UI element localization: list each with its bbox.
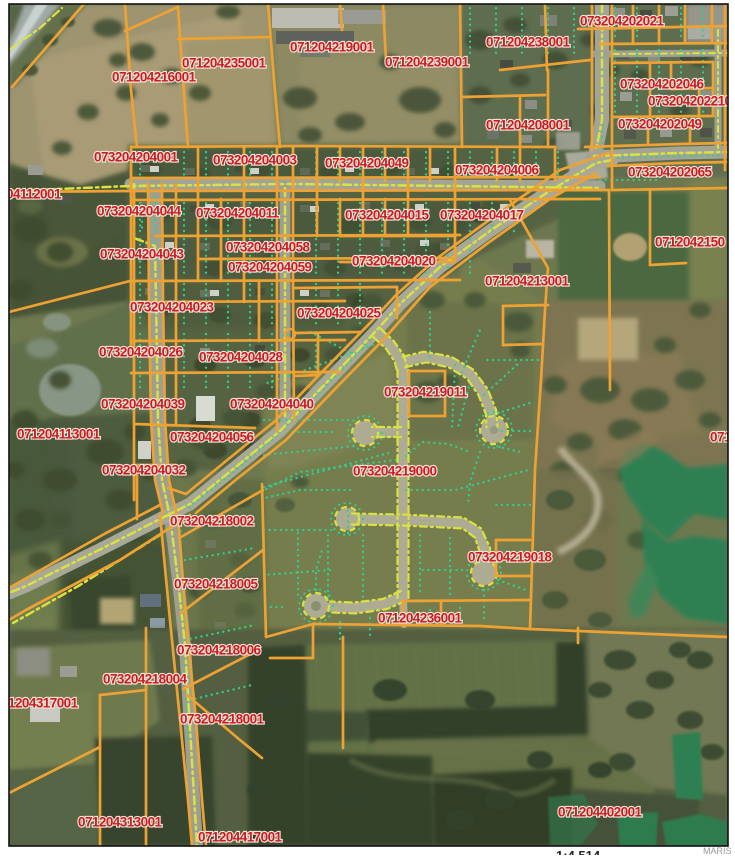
svg-text:073204202021: 073204202021	[580, 14, 665, 29]
svg-text:073204204001: 073204204001	[94, 150, 179, 165]
svg-text:073204202065: 073204202065	[628, 165, 713, 180]
svg-text:0712042150: 0712042150	[655, 235, 725, 250]
svg-text:073204218006: 073204218006	[177, 643, 262, 658]
svg-text:073204204020: 073204204020	[352, 254, 436, 269]
svg-text:073204204025: 073204204025	[297, 306, 382, 321]
svg-text:073204204032: 073204204032	[102, 463, 186, 478]
svg-text:073204218004: 073204218004	[103, 672, 188, 687]
svg-text:073204218001: 073204218001	[180, 712, 265, 727]
svg-text:073204204003: 073204204003	[213, 153, 298, 168]
svg-text:071204235001: 071204235001	[182, 56, 267, 71]
svg-text:073204202210: 073204202210	[648, 94, 732, 109]
svg-text:MARIS: MARIS	[703, 846, 732, 855]
svg-text:073204219018: 073204219018	[468, 550, 553, 565]
svg-text:073204219011: 073204219011	[384, 385, 468, 400]
svg-text:073204204026: 073204204026	[99, 345, 184, 360]
svg-text:071204213001: 071204213001	[485, 274, 570, 289]
svg-text:073204204011: 073204204011	[196, 206, 280, 221]
svg-text:073204204043: 073204204043	[100, 247, 185, 262]
svg-text:071204402001: 071204402001	[558, 805, 643, 820]
svg-text:073204204028: 073204204028	[199, 350, 284, 365]
svg-text:073204202046: 073204202046	[620, 77, 705, 92]
svg-text:073204218005: 073204218005	[174, 577, 259, 592]
svg-text:1:4,514: 1:4,514	[556, 848, 601, 855]
svg-text:071204239001: 071204239001	[385, 55, 470, 70]
svg-text:071204216001: 071204216001	[112, 70, 197, 85]
svg-text:071204417001: 071204417001	[198, 830, 283, 845]
svg-text:073204204049: 073204204049	[325, 156, 409, 171]
svg-text:073204202049: 073204202049	[618, 117, 702, 132]
svg-text:071204208001: 071204208001	[486, 118, 571, 133]
svg-text:073204219000: 073204219000	[353, 464, 437, 479]
svg-text:071204313001: 071204313001	[78, 815, 163, 830]
svg-text:073204204039: 073204204039	[101, 397, 185, 412]
svg-text:04112001: 04112001	[6, 187, 62, 202]
svg-text:073204204044: 073204204044	[97, 204, 182, 219]
svg-text:073204204006: 073204204006	[455, 163, 540, 178]
svg-text:073204204017: 073204204017	[440, 208, 524, 223]
svg-text:071204113001: 071204113001	[17, 427, 101, 442]
svg-text:073204204058: 073204204058	[226, 240, 311, 255]
svg-text:073204204015: 073204204015	[345, 208, 430, 223]
svg-text:071204236001: 071204236001	[378, 611, 463, 626]
svg-text:073204204056: 073204204056	[170, 430, 255, 445]
svg-text:073204218002: 073204218002	[170, 514, 254, 529]
svg-text:073204204059: 073204204059	[228, 260, 312, 275]
svg-text:071204238001: 071204238001	[486, 35, 571, 50]
svg-text:073204204023: 073204204023	[130, 300, 215, 315]
svg-text:1204317001: 1204317001	[8, 696, 79, 711]
svg-text:071204219001: 071204219001	[290, 40, 375, 55]
svg-text:073204204040: 073204204040	[230, 397, 314, 412]
